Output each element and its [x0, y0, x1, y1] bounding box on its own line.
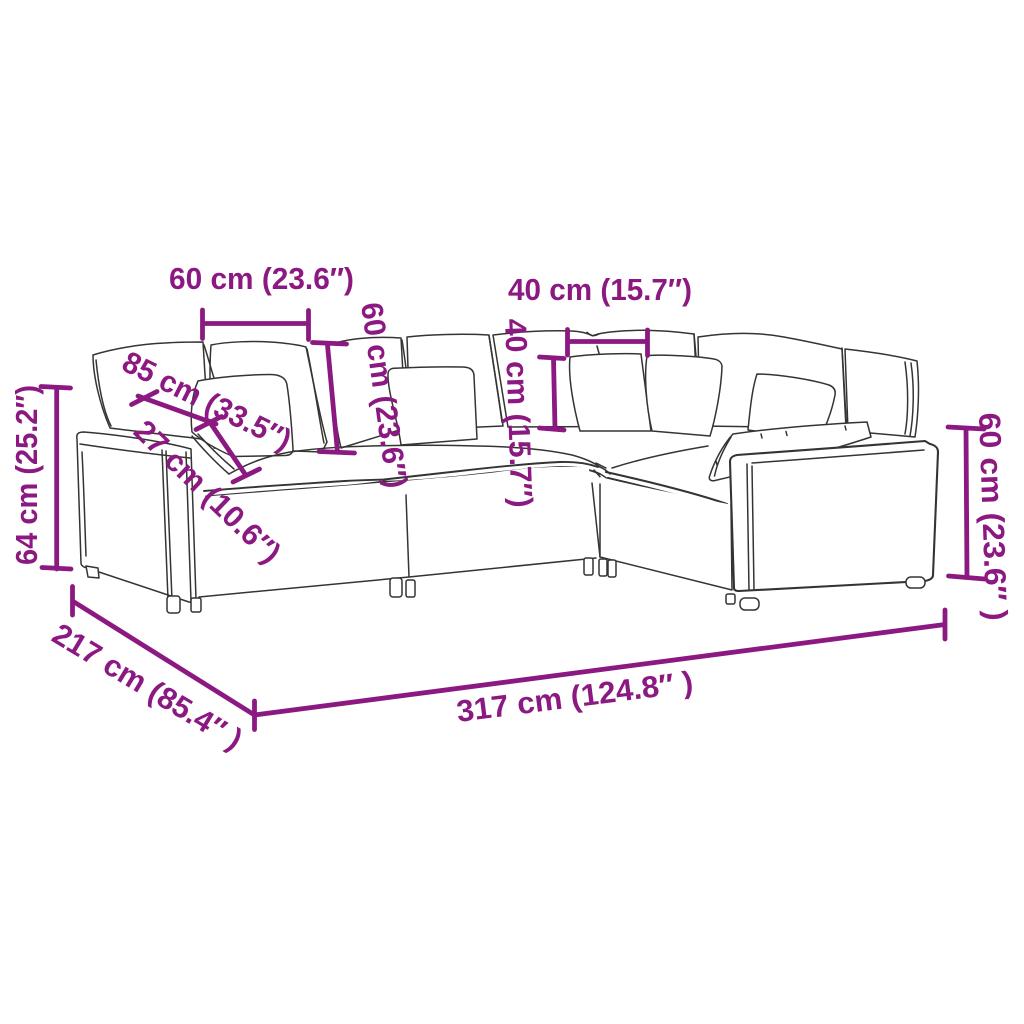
svg-text:40 cm (15.7″): 40 cm (15.7″)	[498, 318, 539, 508]
svg-text:60 cm (23.6″ ): 60 cm (23.6″ )	[972, 412, 1013, 621]
svg-text:40 cm (15.7″): 40 cm (15.7″)	[508, 273, 692, 307]
svg-text:64 cm (25.2″): 64 cm (25.2″)	[10, 385, 44, 565]
svg-text:60 cm (23.6″): 60 cm (23.6″)	[169, 262, 354, 296]
